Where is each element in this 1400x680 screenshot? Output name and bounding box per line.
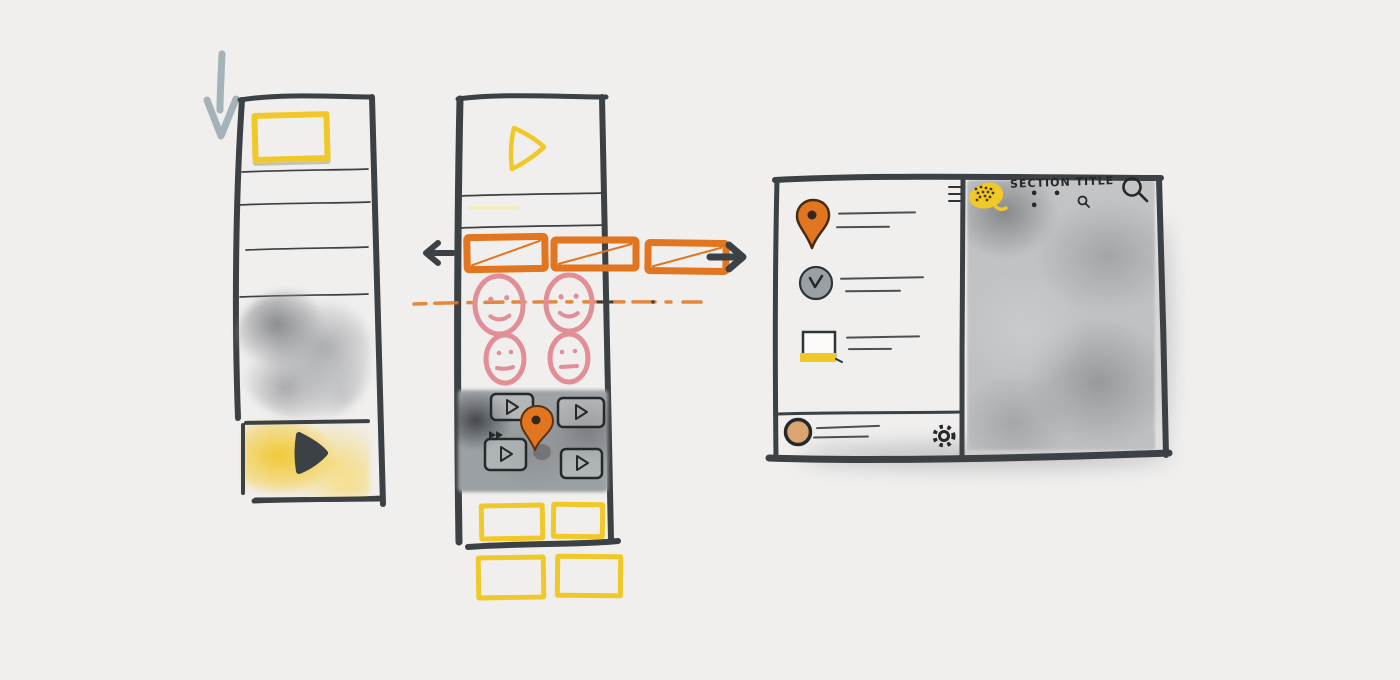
clock-icon [797,265,837,303]
text-line [845,290,901,292]
swipe-left-arrow-icon[interactable] [417,239,455,267]
avatar-face [546,275,593,332]
sidebar-item-location[interactable] [780,194,950,260]
faint-underline [467,206,519,210]
carousel-card[interactable] [462,231,551,275]
header-subtitle: • • • [1030,194,1090,208]
text-line [813,436,869,439]
wireframe-sketch-canvas: SECTION TITLE • • • [0,0,1400,680]
sidebar-item-files[interactable] [780,324,950,372]
avatar-face [486,335,524,383]
avatar-face [550,334,588,382]
sidebar-footer [778,413,964,457]
video-grid [458,390,608,492]
thumbnail-placeholder[interactable] [479,502,546,541]
mini-magnifier-icon[interactable] [1077,195,1090,208]
carousel-card[interactable] [549,235,641,273]
image-placeholder [251,111,330,163]
video-tile[interactable] [558,398,604,427]
text-line [836,226,890,228]
text-line [838,211,916,214]
map-pin-icon [793,196,833,254]
gear-icon[interactable] [930,422,958,450]
search-icon[interactable] [1120,175,1150,205]
thumbnail-placeholder[interactable] [476,555,547,601]
folder-icon [795,327,843,369]
text-line [816,425,880,429]
play-icon[interactable] [290,430,332,478]
thumbnail-placeholder[interactable] [551,502,605,540]
video-player-left-edge [241,423,245,495]
avatar[interactable] [782,416,816,450]
video-tile[interactable] [485,439,526,470]
text-line [846,335,920,338]
hero-play-outline-icon[interactable] [498,120,558,180]
avatar-face [474,275,524,335]
dots-menu[interactable]: • • • [1030,189,1074,213]
sidebar-item-recent[interactable] [780,263,950,313]
cookie-logo-icon[interactable] [962,176,1008,214]
text-line [840,276,924,279]
thumbnail-placeholder[interactable] [555,554,623,599]
text-line [848,348,892,350]
photo-placeholder [236,292,370,418]
swipe-right-arrow-icon[interactable] [704,241,748,273]
video-tile[interactable] [561,449,602,478]
avatar-face-grid [466,272,600,384]
